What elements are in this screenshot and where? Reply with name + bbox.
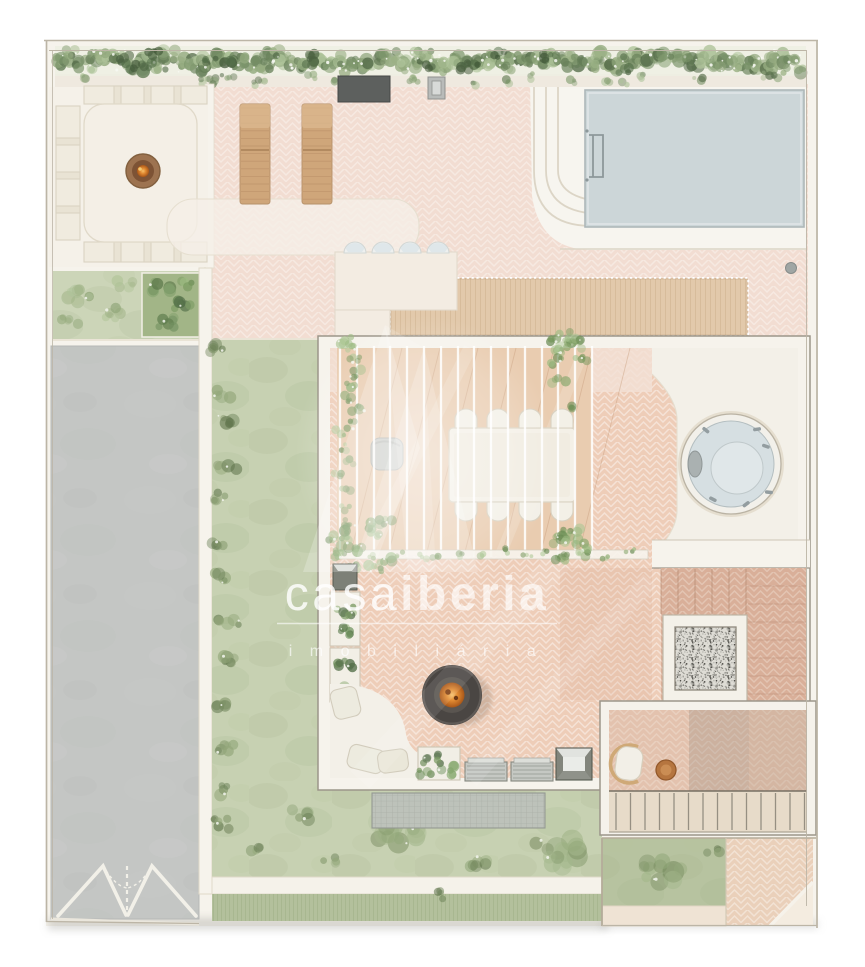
svg-text:casaiberia: casaiberia	[285, 568, 549, 621]
svg-text:imobiliária: imobiliária	[289, 643, 554, 660]
